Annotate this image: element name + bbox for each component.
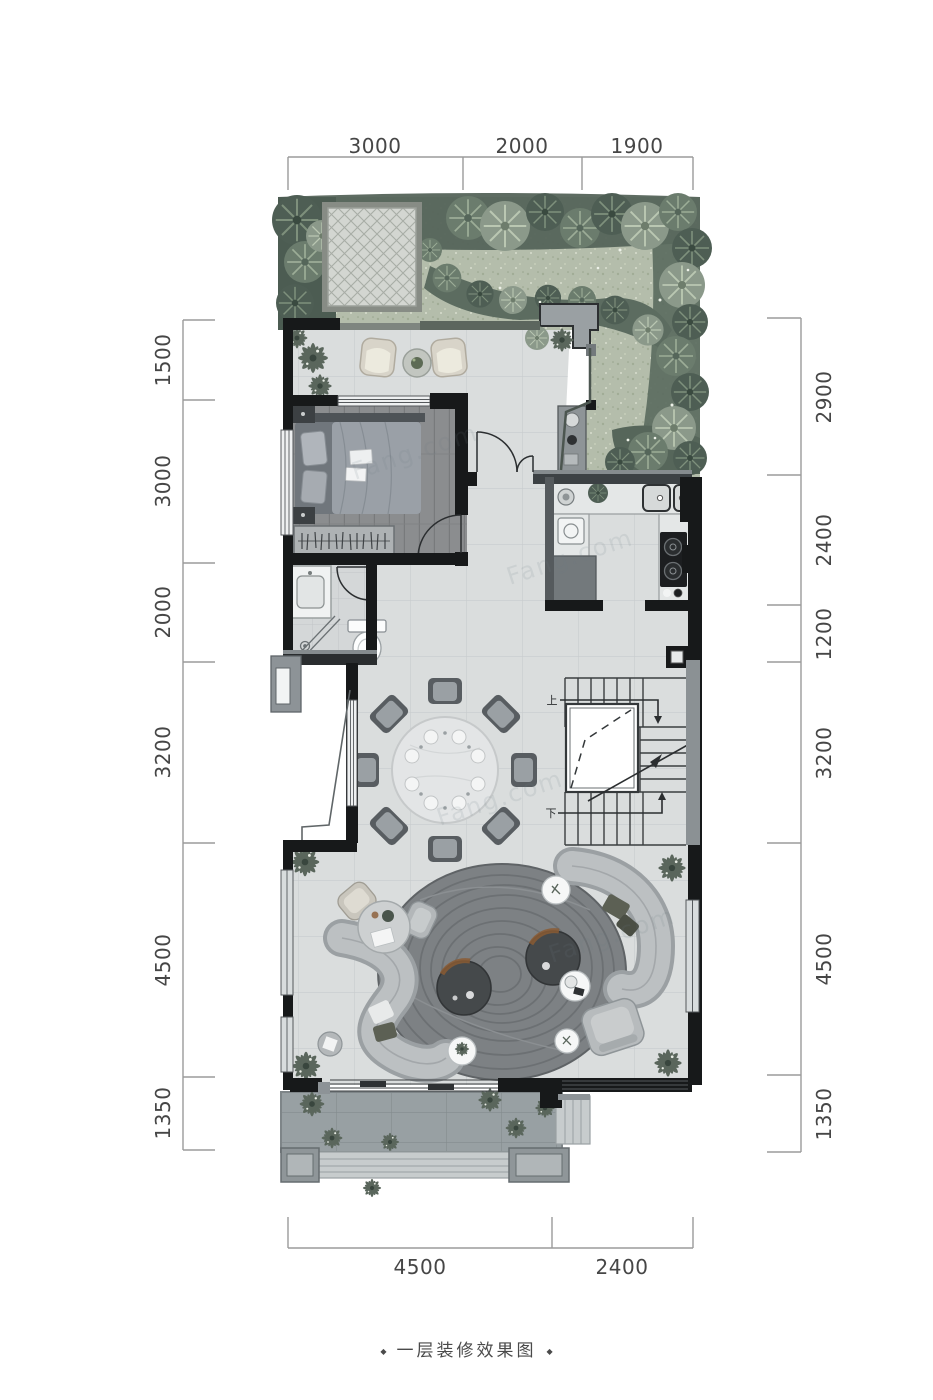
coffee-table — [437, 961, 491, 1015]
dim-bottom-1: 4500 — [394, 1255, 447, 1279]
living-window-right — [686, 900, 699, 1012]
side-table — [542, 876, 570, 904]
dim-right-5: 4500 — [812, 933, 836, 986]
side-table — [560, 971, 590, 1001]
bistro-table — [358, 901, 410, 953]
dim-top-3: 1900 — [611, 134, 664, 158]
dim-left-1: 1500 — [151, 334, 175, 387]
floor-plan-page: 3000 2000 1900 1500 3000 2000 3200 4500 … — [0, 0, 933, 1400]
caption-right-dot: ◆ — [547, 1347, 553, 1356]
dim-left-4: 3200 — [151, 726, 175, 779]
dining-window — [347, 700, 357, 806]
garden-paving — [322, 202, 422, 312]
dim-right-2: 2400 — [812, 514, 836, 567]
caption-left-dot: ◆ — [380, 1347, 386, 1356]
exterior-unit — [271, 656, 301, 712]
dim-left-3: 2000 — [151, 586, 175, 639]
dim-left-6: 1350 — [151, 1087, 175, 1140]
dim-right-4: 3200 — [812, 727, 836, 780]
bedroom-window-left — [281, 430, 293, 535]
side-table — [555, 1029, 579, 1053]
bedroom-window-top — [338, 396, 430, 406]
corner-plant — [658, 854, 685, 881]
corner-plant — [292, 1052, 321, 1081]
court-boundary — [302, 690, 350, 843]
floor-stool — [318, 1032, 342, 1056]
plan-caption: ◆一层装修效果图◆ — [0, 1336, 933, 1361]
counter-plant — [588, 483, 608, 503]
stair-down-label: 下 — [546, 805, 557, 821]
dim-right-1: 2900 — [812, 371, 836, 424]
dim-bottom-2: 2400 — [596, 1255, 649, 1279]
caption-text: 一层装修效果图 — [397, 1341, 537, 1361]
patio-plant — [298, 343, 328, 373]
corner-plant — [654, 1049, 681, 1076]
floor-plan-drawing — [0, 0, 933, 1400]
dim-right-6: 1350 — [812, 1088, 836, 1141]
wardrobe — [294, 526, 394, 556]
stair-up-label: 上 — [547, 692, 558, 708]
side-table — [448, 1037, 476, 1065]
living-window-left — [281, 870, 293, 1072]
dim-left-2: 3000 — [151, 455, 175, 508]
dim-right-3: 1200 — [812, 608, 836, 661]
dim-top-1: 3000 — [349, 134, 402, 158]
dim-top-2: 2000 — [496, 134, 549, 158]
dim-left-5: 4500 — [151, 934, 175, 987]
